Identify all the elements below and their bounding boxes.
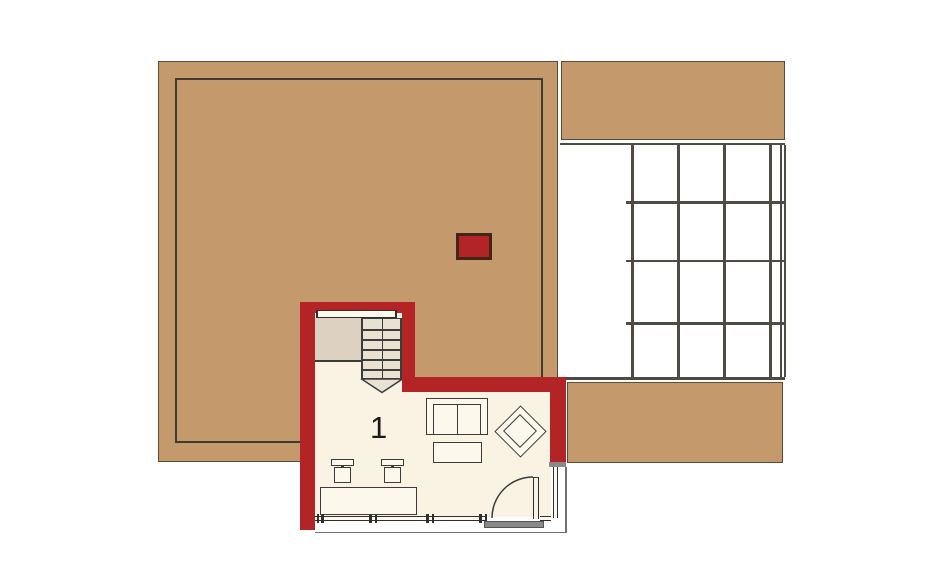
door-threshold (484, 521, 544, 528)
door-swing-arc (490, 475, 536, 521)
lower-floor-outline-bottom (315, 532, 567, 534)
wall-right (550, 377, 566, 466)
window-mullion (432, 514, 435, 523)
desk (320, 487, 417, 515)
stair-break-symbol (360, 379, 404, 395)
window-mullion (479, 514, 482, 523)
chair-2-seat (384, 467, 401, 483)
window-mullion (317, 514, 320, 523)
armchair (494, 405, 546, 457)
lower-floor-outline-right (565, 467, 567, 533)
roof-band-top (561, 61, 785, 140)
room-number-label: 1 (370, 412, 387, 443)
chair-1-seat (334, 467, 351, 483)
window-mullion (426, 514, 429, 523)
window-mullion (369, 514, 372, 523)
staircase (361, 318, 402, 379)
roof-band-bottom (567, 382, 783, 463)
pergola-beam-h3 (626, 322, 785, 325)
pergola-top-line (560, 143, 785, 146)
wall-left (300, 302, 315, 530)
window-mullion (375, 514, 378, 523)
bottom-window (315, 516, 487, 521)
stair-landing (315, 318, 361, 362)
chimney (456, 233, 492, 260)
door-leaf (533, 477, 539, 519)
pergola-beam-h2 (626, 260, 785, 263)
pergola-bottom-line (560, 377, 785, 380)
stair-center-rail (382, 319, 384, 378)
window-mullion (321, 514, 324, 523)
stair-top-window (316, 310, 397, 318)
right-window (553, 467, 558, 518)
coffee-table (433, 442, 482, 463)
sofa-cushion-divider (457, 405, 459, 434)
pergola-beam-h1 (626, 201, 785, 204)
floor-plan: 1 (0, 0, 940, 587)
wall-middle-horizontal (402, 377, 566, 392)
